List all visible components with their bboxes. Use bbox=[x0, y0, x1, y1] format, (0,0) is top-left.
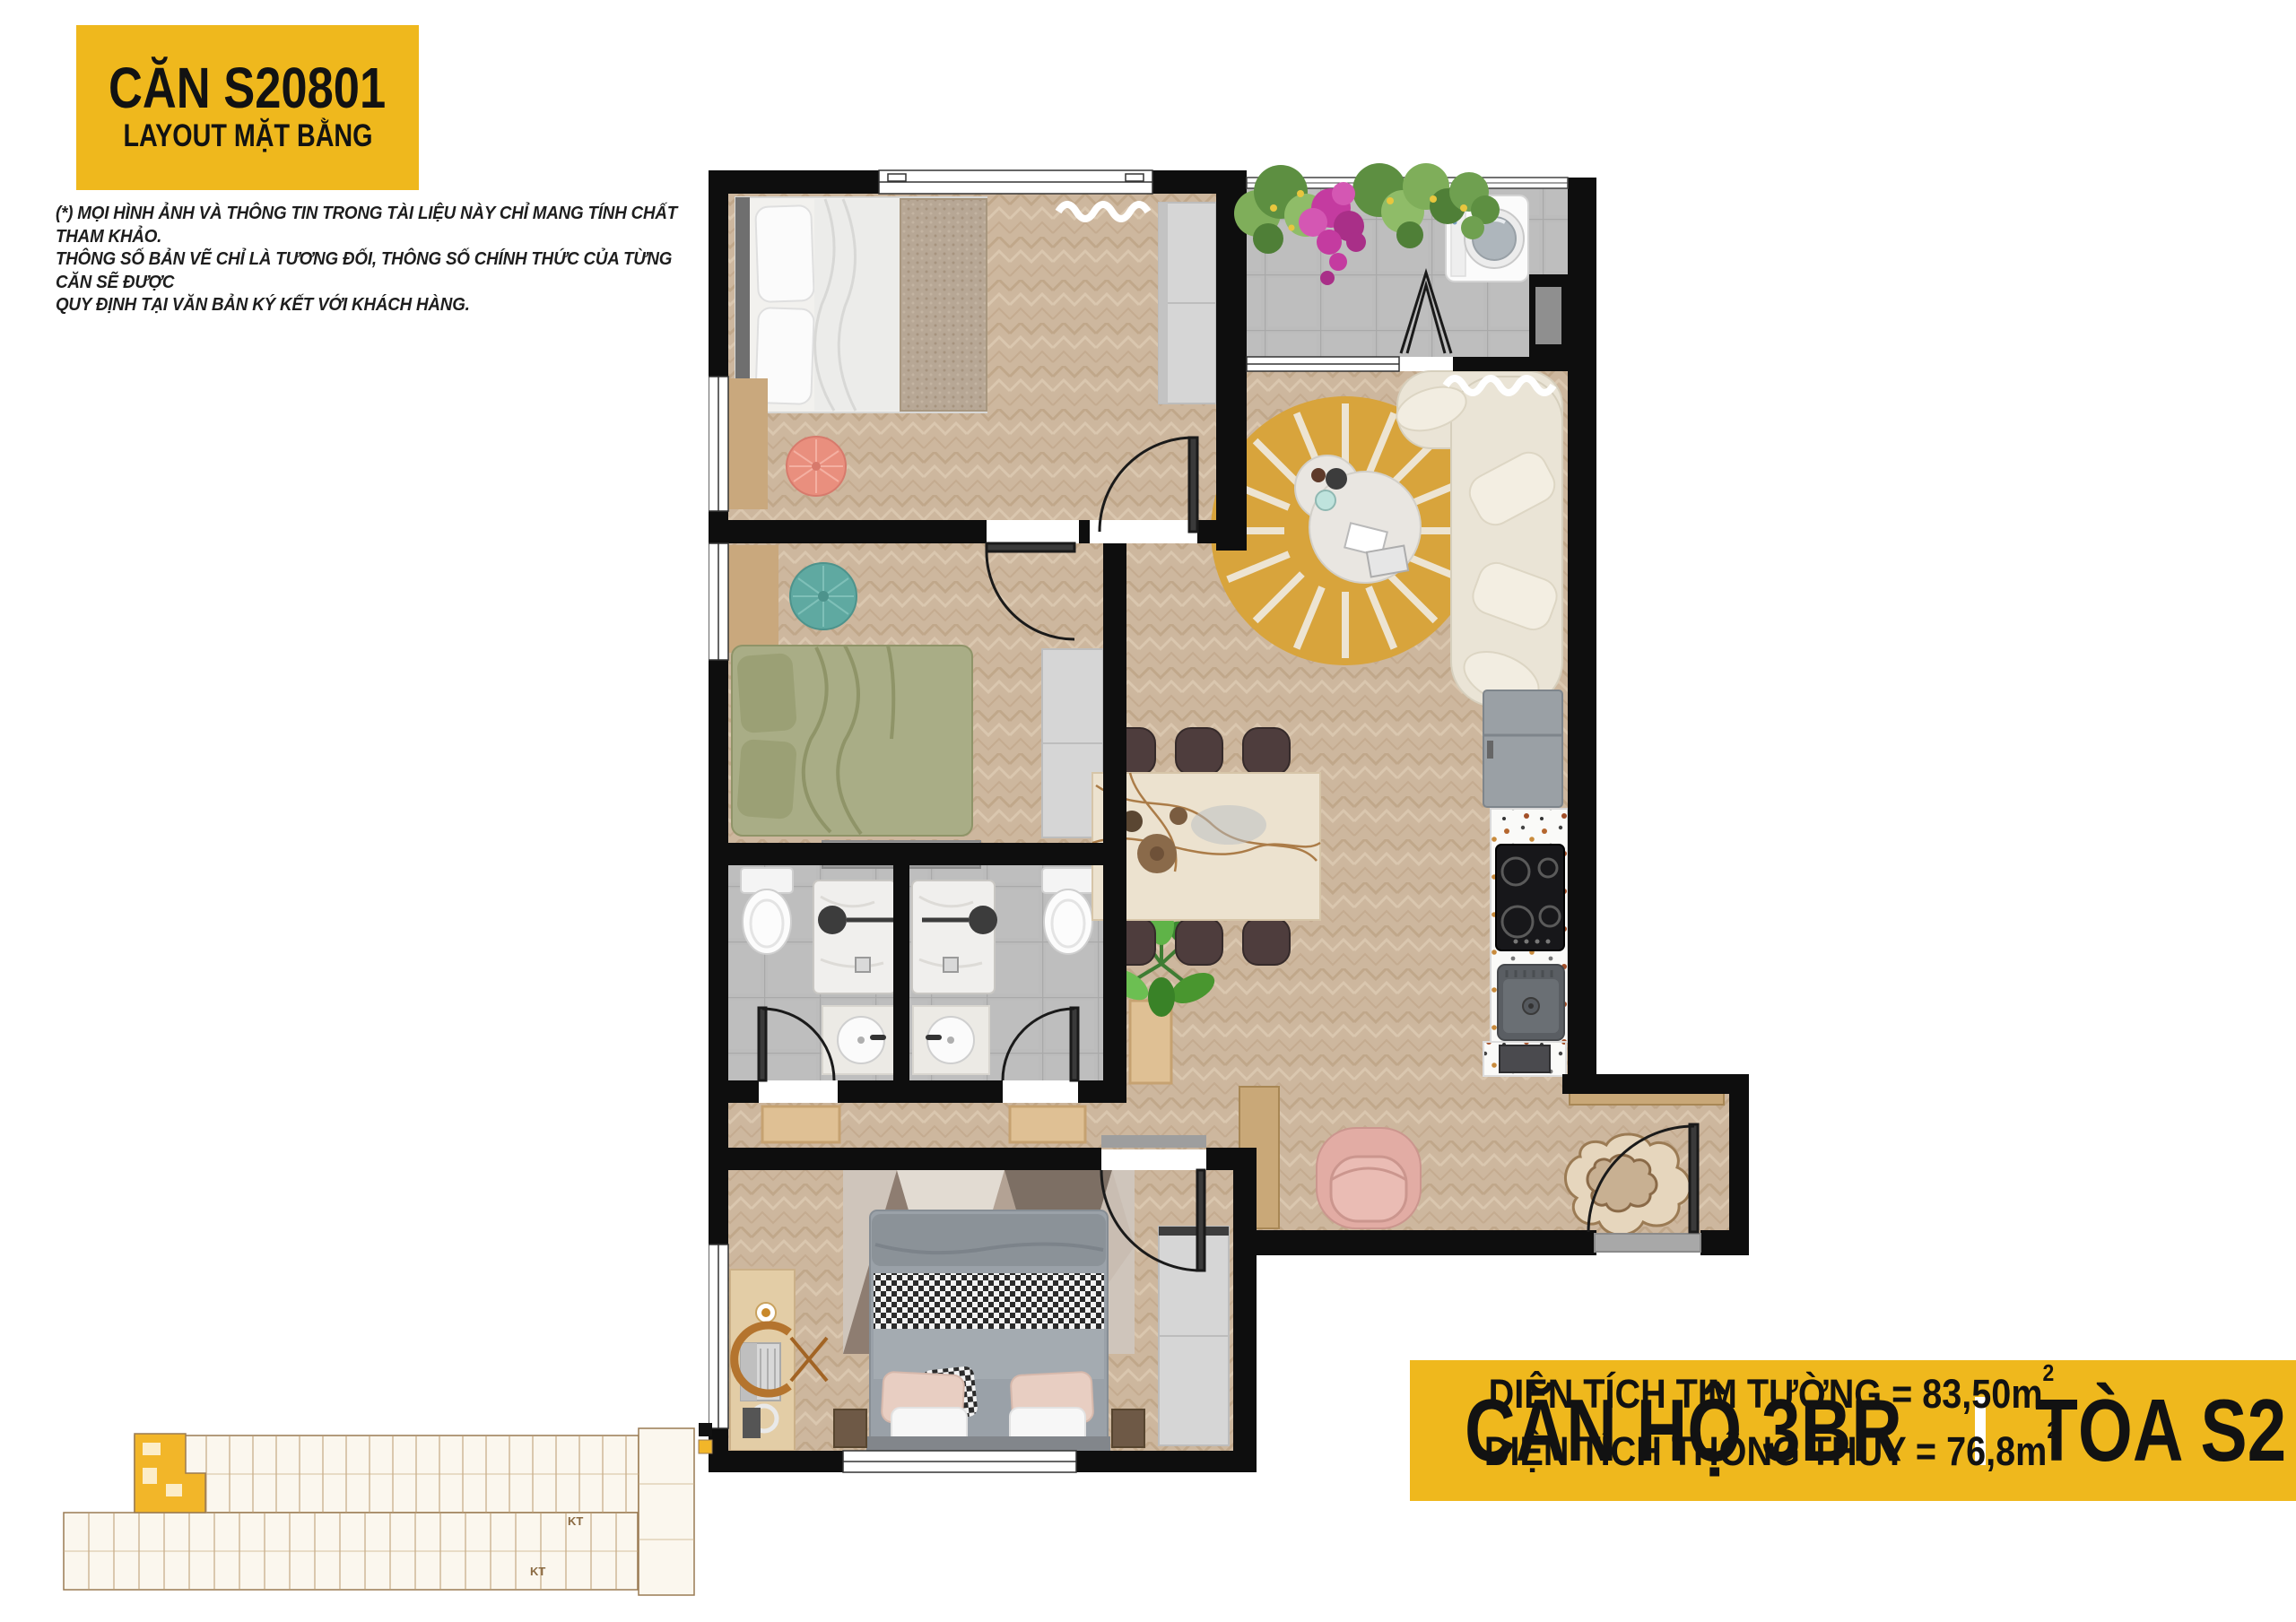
nightstand-left bbox=[834, 1409, 866, 1447]
disclaimer-text: (*) MỌI HÌNH ẢNH VÀ THÔNG TIN TRONG TÀI … bbox=[56, 203, 719, 317]
bedroom2-pouf bbox=[790, 563, 857, 629]
keyplan-legend-dark bbox=[699, 1423, 712, 1436]
brochure-page: CĂN S20801 LAYOUT MẶT BẰNG (*) MỌI HÌNH … bbox=[0, 0, 2296, 1622]
disclaimer-line: (*) MỌI HÌNH ẢNH VÀ THÔNG TIN TRONG TÀI … bbox=[56, 203, 680, 248]
net-area-line: DIỆN TÍCH THÔNG THỦY = 76,8m2 bbox=[1453, 1428, 2089, 1475]
bath2-toilet bbox=[1042, 868, 1094, 954]
bath1-shower bbox=[813, 880, 896, 993]
cooktop bbox=[1496, 845, 1564, 950]
bath1-toilet bbox=[741, 868, 793, 954]
pink-armchair bbox=[1317, 1128, 1421, 1228]
net-area-text: DIỆN TÍCH THÔNG THỦY = 76,8m bbox=[1484, 1428, 2047, 1474]
bedroom1-bed bbox=[735, 197, 987, 412]
bath1-mat bbox=[762, 1106, 839, 1142]
balcony-slider bbox=[1247, 357, 1399, 371]
keyplan-end-block bbox=[639, 1428, 694, 1595]
layout-subtitle: LAYOUT MẶT BẰNG bbox=[123, 117, 372, 156]
ac-ledge bbox=[1535, 287, 1561, 344]
kitchen-sink bbox=[1498, 965, 1564, 1040]
gross-area-line: DIỆN TÍCH TIM TƯỜNG = 83,50m2 bbox=[1453, 1371, 2089, 1418]
kitchen-niche bbox=[1483, 1042, 1566, 1076]
master-bottom-window bbox=[843, 1451, 1076, 1472]
bath2-mat bbox=[1010, 1106, 1085, 1142]
dining-table bbox=[1092, 773, 1320, 920]
master-desk bbox=[730, 1270, 795, 1451]
bedroom1-top-window bbox=[879, 170, 1152, 194]
bath2-shower bbox=[912, 880, 997, 993]
keyplan-kt-label-upper: KT bbox=[568, 1514, 583, 1528]
unit-code-title: CĂN S20801 bbox=[109, 59, 386, 117]
title-banner: CĂN S20801 LAYOUT MẶT BẰNG bbox=[76, 25, 419, 190]
disclaimer-line: QUY ĐỊNH TẠI VĂN BẢN KÝ KẾT VỚI KHÁCH HÀ… bbox=[56, 294, 680, 317]
bedroom1-wardrobe bbox=[1159, 203, 1216, 403]
bedroom1-pouf bbox=[787, 437, 846, 496]
disclaimer-line: THÔNG SỐ BẢN VẼ CHỈ LÀ TƯƠNG ĐỐI, THÔNG … bbox=[56, 248, 680, 294]
nightstand-right bbox=[1112, 1409, 1144, 1447]
bedroom1-window-bench bbox=[728, 378, 768, 509]
keyplan-legend-yellow bbox=[699, 1440, 712, 1453]
unit-info-block: CĂN HỘ 3BR TÒA S2 DIỆN TÍCH TIM TƯỜNG = … bbox=[1410, 1360, 2133, 1475]
keyplan: KT KT bbox=[49, 1421, 722, 1609]
master-wardrobe bbox=[1159, 1227, 1229, 1445]
fridge bbox=[1483, 690, 1562, 807]
net-area-sup: 2 bbox=[2047, 1417, 2058, 1444]
bedroom2-bed bbox=[732, 646, 972, 836]
master-bed bbox=[866, 1210, 1110, 1451]
bedroom2-window-bench bbox=[728, 545, 778, 653]
floorplan bbox=[709, 108, 1758, 1479]
bath1-sink bbox=[822, 1006, 899, 1074]
gross-area-sup: 2 bbox=[2043, 1359, 2055, 1386]
entry-threshold bbox=[1595, 1234, 1700, 1252]
bath2-sink bbox=[913, 1006, 989, 1074]
gross-area-text: DIỆN TÍCH TIM TƯỜNG = 83,50m bbox=[1489, 1371, 2043, 1417]
keyplan-kt-label-lower: KT bbox=[530, 1565, 545, 1578]
master-door-lintel bbox=[1101, 1135, 1206, 1148]
